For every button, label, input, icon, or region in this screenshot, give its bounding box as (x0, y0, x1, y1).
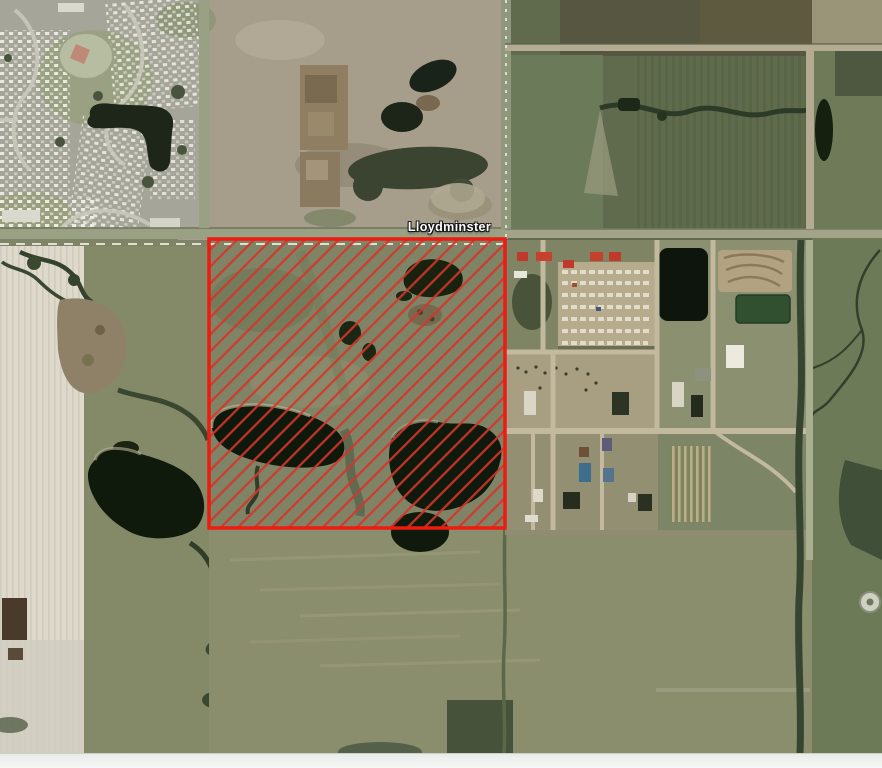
residential-neighbourhood (0, 0, 216, 234)
tree-line-east (799, 240, 802, 753)
aerial-parcel-photo: Lloydminster (0, 0, 882, 768)
pond (618, 98, 640, 111)
red-roof-warehouse (609, 252, 621, 261)
road-east-vertical (806, 45, 814, 229)
white-shed (533, 489, 543, 502)
tan-field-north (178, 0, 510, 240)
road-centre-vertical (501, 0, 511, 229)
east-edge-fields (810, 0, 882, 753)
gray-tank-pad (695, 368, 711, 381)
dark-shed (691, 395, 703, 417)
green-field-northeast (505, 0, 812, 240)
purple-shed (602, 438, 612, 451)
white-shed (524, 391, 536, 415)
blue-building (579, 463, 591, 482)
red-roof-warehouse (536, 252, 552, 261)
white-shed (525, 515, 538, 522)
white-building (514, 271, 527, 278)
pond (381, 102, 423, 132)
red-roof-warehouse (590, 252, 603, 261)
dark-building (563, 492, 580, 509)
dark-building (612, 392, 629, 415)
condo-building (150, 218, 180, 228)
white-shed (628, 493, 636, 502)
parcel-hatch (209, 239, 505, 528)
road-north-vertical (199, 0, 209, 228)
condo-building (58, 3, 84, 12)
red-roof-warehouse (563, 260, 574, 268)
image-bottom-margin (0, 753, 882, 768)
tree-line (503, 528, 505, 753)
green-pond (736, 295, 790, 323)
white-warehouse (726, 345, 744, 368)
pond (815, 99, 833, 161)
red-roof-warehouse (517, 252, 528, 261)
industrial-park (505, 240, 812, 535)
farm-building (2, 598, 27, 640)
condo-building (2, 210, 40, 222)
field-south (209, 528, 812, 753)
blue-shed (603, 468, 614, 482)
road-northeast-horizontal (505, 44, 882, 51)
lagoon (659, 248, 708, 321)
boundary-road-east (505, 229, 882, 238)
tree-block (512, 274, 552, 330)
dark-building (638, 494, 652, 511)
brown-shed (579, 447, 589, 457)
satellite-map (0, 0, 882, 753)
road-east-vertical-south (806, 240, 813, 560)
white-shed (672, 382, 684, 407)
